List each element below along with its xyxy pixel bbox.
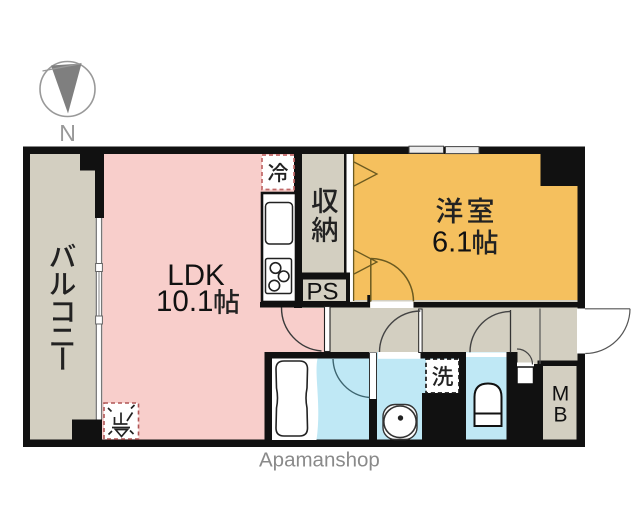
svg-text:PS: PS (306, 279, 338, 306)
svg-text:Apamanshop: Apamanshop (259, 449, 380, 472)
svg-text:M: M (552, 383, 570, 406)
svg-text:10.1: 10.1 (156, 285, 213, 318)
svg-text:6.1: 6.1 (432, 227, 472, 259)
svg-text:N: N (59, 120, 76, 146)
svg-text:B: B (553, 404, 567, 427)
